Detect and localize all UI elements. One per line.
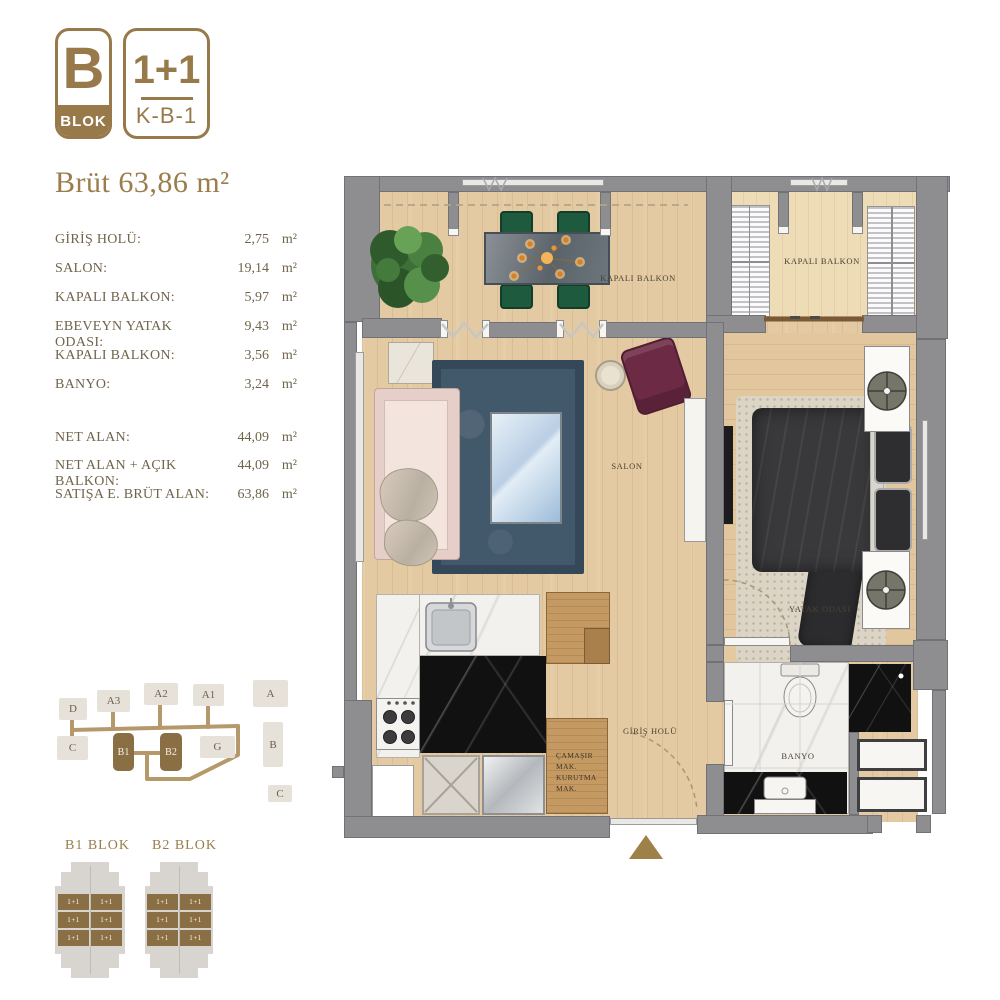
unit-cell: 1+1 (91, 930, 122, 946)
bath-bench (754, 799, 816, 814)
side-table (388, 342, 434, 384)
wall (362, 318, 442, 338)
row-label: KAPALI BALKON: (55, 290, 223, 306)
table-row: NET ALAN:44,09m² (55, 430, 297, 446)
wall (913, 640, 948, 690)
door-jamb (482, 320, 490, 338)
bed-pillow (874, 488, 912, 552)
block-word: BLOK (58, 105, 109, 138)
wall (867, 815, 882, 833)
wall (862, 315, 918, 333)
door-jamb (556, 320, 564, 338)
wall (932, 690, 946, 814)
wall (706, 645, 724, 662)
unit-cell: 1+1 (147, 894, 178, 910)
shaft (857, 777, 927, 812)
row-unit: m² (269, 348, 297, 364)
site-block-a2: A2 (144, 683, 178, 705)
row-value: 9,43 (223, 319, 269, 335)
unit-type: 1+1 (126, 31, 207, 93)
site-block-b: B (263, 722, 283, 767)
area-table: GİRİŞ HOLÜ:2,75m² SALON:19,14m² KAPALI B… (55, 232, 297, 402)
row-unit: m² (269, 377, 297, 393)
ac-unit (862, 551, 910, 629)
unit-grid: 1+1 1+1 1+1 1+1 1+1 1+1 (147, 894, 211, 946)
window-mullion (778, 192, 789, 230)
room-label-balcony-right: KAPALI BALKON (774, 256, 870, 266)
room-label-bedroom: YATAK ODASI (780, 604, 860, 614)
refrigerator (482, 755, 545, 815)
badge-divider (141, 97, 193, 100)
block-letter: B (58, 31, 109, 105)
row-label: BANYO: (55, 377, 223, 393)
door-jamb (440, 320, 448, 338)
room-label-salon: SALON (597, 461, 657, 471)
dishwasher (422, 755, 480, 815)
bedroom-door-leaf (724, 637, 790, 646)
kitchen-niche (372, 765, 414, 817)
wall-pier (332, 766, 344, 778)
wall (344, 700, 372, 818)
unit-cell: 1+1 (180, 930, 211, 946)
laundry-line: KURUTMA (556, 772, 606, 783)
dining-chair (557, 284, 590, 309)
wall (916, 815, 931, 833)
site-block-b1: B1 (113, 733, 134, 771)
table-row: SATIŞA E. BRÜT ALAN:63,86m² (55, 487, 297, 503)
row-label: NET ALAN: (55, 430, 223, 446)
row-value: 19,14 (223, 261, 269, 277)
bed (752, 408, 878, 572)
unit-grid: 1+1 1+1 1+1 1+1 1+1 1+1 (58, 894, 122, 946)
table-row: GİRİŞ HOLÜ:2,75m² (55, 232, 297, 248)
wall (697, 815, 873, 834)
page-title: Brüt 63,86 m² (55, 166, 230, 200)
window (922, 420, 928, 540)
wall (344, 176, 380, 322)
unit-cell: 1+1 (58, 930, 89, 946)
row-unit: m² (269, 261, 297, 277)
row-unit: m² (269, 458, 297, 474)
wall (706, 764, 724, 818)
row-label: KAPALI BALKON: (55, 348, 223, 364)
unit-cell: 1+1 (91, 912, 122, 928)
door-jamb (600, 228, 611, 236)
bathroom-door-leaf (724, 700, 733, 766)
table-row: BANYO:3,24m² (55, 377, 297, 393)
unit-cell: 1+1 (58, 912, 89, 928)
round-side-table (595, 360, 626, 391)
row-unit: m² (269, 319, 297, 335)
unit-cell: 1+1 (180, 912, 211, 928)
door-jamb (778, 226, 789, 234)
coffee-table (490, 412, 562, 524)
wall (488, 322, 560, 338)
balcony-lounger (867, 206, 915, 318)
floor-plan-brochure-page: B BLOK 1+1 K-B-1 Brüt 63,86 m² GİRİŞ HOL… (0, 0, 1000, 1000)
window (790, 179, 848, 186)
unit-cell: 1+1 (147, 912, 178, 928)
area-totals: NET ALAN:44,09m² NET ALAN + AÇIK BALKON:… (55, 430, 297, 520)
balcony-lounger (727, 205, 770, 317)
unit-cell: 1+1 (91, 894, 122, 910)
tv-console (684, 398, 706, 542)
row-value: 44,09 (223, 430, 269, 446)
wall (706, 322, 724, 645)
kitchen-island (420, 656, 546, 753)
room-label-hall: GİRİŞ HOLÜ (610, 726, 690, 736)
wall (706, 176, 732, 322)
wall (916, 339, 946, 640)
entrance-arrow (629, 835, 663, 859)
row-unit: m² (269, 430, 297, 446)
row-value: 63,86 (223, 487, 269, 503)
site-block-c2: C (268, 785, 292, 802)
unit-code: K-B-1 (126, 103, 207, 129)
wall (790, 645, 918, 662)
wall (706, 662, 724, 702)
row-label: SATIŞA E. BRÜT ALAN: (55, 487, 223, 503)
door-jamb (852, 226, 863, 234)
site-block-b2: B2 (160, 733, 182, 771)
tv (724, 426, 733, 524)
shaft (857, 739, 927, 771)
wall (344, 816, 610, 838)
room-label-bathroom: BANYO (768, 751, 828, 761)
table-row: NET ALAN + AÇIK BALKON:44,09m² (55, 458, 297, 490)
block-badge: B BLOK (55, 28, 112, 139)
mini-block-plate-b1: 1+1 1+1 1+1 1+1 1+1 1+1 (55, 862, 125, 978)
unit-cell: 1+1 (58, 894, 89, 910)
row-value: 3,56 (223, 348, 269, 364)
row-value: 5,97 (223, 290, 269, 306)
window-mullion (448, 192, 459, 232)
panel-divider (728, 261, 769, 263)
window (462, 179, 604, 186)
stove (376, 698, 420, 750)
row-label: NET ALAN + AÇIK BALKON: (55, 458, 223, 490)
row-label: SALON: (55, 261, 223, 277)
wall (916, 176, 948, 339)
mini-block-plate-b2: 1+1 1+1 1+1 1+1 1+1 1+1 (145, 862, 213, 978)
unit-cell: 1+1 (147, 930, 178, 946)
laundry-line: ÇAMAŞIR (556, 750, 606, 761)
kitchen-cabinet-section (584, 628, 610, 664)
window-mullion (600, 192, 611, 232)
site-block-c: C (57, 736, 88, 760)
bed-pillow (874, 424, 912, 484)
row-unit: m² (269, 290, 297, 306)
wall (344, 176, 950, 192)
site-block-a: A (253, 680, 288, 707)
table-row: KAPALI BALKON:3,56m² (55, 348, 297, 364)
ac-unit (864, 346, 910, 432)
row-label: GİRİŞ HOLÜ: (55, 232, 223, 248)
site-block-d: D (59, 698, 87, 720)
panel-divider (868, 262, 914, 264)
laundry-line: MAK. (556, 783, 606, 794)
table-row: KAPALI BALKON:5,97m² (55, 290, 297, 306)
row-value: 3,24 (223, 377, 269, 393)
entry-threshold (610, 818, 697, 825)
unit-cell: 1+1 (180, 894, 211, 910)
row-unit: m² (269, 487, 297, 503)
site-block-g: G (200, 736, 235, 758)
shower (849, 664, 911, 732)
row-value: 2,75 (223, 232, 269, 248)
row-value: 44,09 (223, 458, 269, 474)
door-jamb (599, 320, 607, 338)
dining-chair (500, 284, 533, 309)
door-jamb (448, 228, 459, 236)
unit-type-badge: 1+1 K-B-1 (123, 28, 210, 139)
mini-block-title-b1: B1 BLOK (65, 838, 130, 854)
laundry-line: MAK. (556, 761, 606, 772)
mini-block-title-b2: B2 BLOK (152, 838, 217, 854)
site-block-a3: A3 (97, 690, 130, 712)
window (355, 352, 364, 562)
wall (603, 322, 707, 338)
row-label: EBEVEYN YATAK ODASI: (55, 319, 223, 351)
table-row: EBEVEYN YATAK ODASI:9,43m² (55, 319, 297, 351)
row-unit: m² (269, 232, 297, 248)
laundry-label: ÇAMAŞIR MAK. KURUTMA MAK. (556, 750, 606, 794)
window-mullion (852, 192, 863, 230)
table-row: SALON:19,14m² (55, 261, 297, 277)
room-label-balcony-left: KAPALI BALKON (590, 273, 686, 283)
site-block-a1: A1 (193, 684, 224, 706)
